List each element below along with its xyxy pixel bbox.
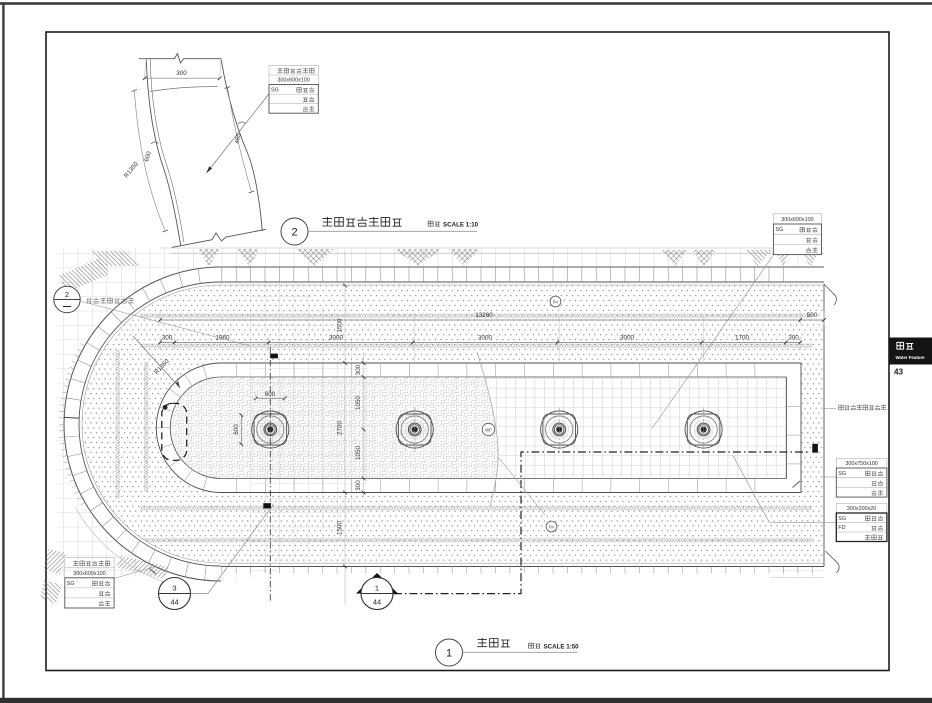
svg-text:13260: 13260	[475, 312, 493, 319]
svg-text:PA: PA	[553, 299, 559, 304]
svg-text:SG: SG	[271, 87, 279, 93]
svg-text:1050: 1050	[355, 396, 362, 411]
svg-text:44: 44	[170, 598, 178, 607]
svg-text:FD: FD	[838, 525, 845, 531]
svg-text:300x750x100: 300x750x100	[845, 461, 877, 467]
svg-text:500: 500	[807, 312, 818, 319]
svg-text:1050: 1050	[355, 446, 362, 461]
svg-text:300: 300	[355, 480, 362, 491]
svg-text:300: 300	[176, 70, 187, 77]
svg-text:300x600x100: 300x600x100	[781, 217, 813, 223]
svg-text:1: 1	[375, 584, 379, 593]
svg-text:300: 300	[355, 364, 362, 375]
svg-text:200x200x20: 200x200x20	[847, 506, 876, 512]
svg-text:1: 1	[446, 648, 452, 660]
svg-text:300: 300	[162, 335, 173, 342]
svg-text:1700: 1700	[735, 335, 750, 342]
svg-text:SG: SG	[775, 227, 783, 233]
svg-text:2: 2	[65, 290, 69, 299]
svg-text:1500: 1500	[337, 521, 344, 536]
svg-text:300x600x100: 300x600x100	[73, 571, 105, 577]
svg-text:SCALE 1:50: SCALE 1:50	[544, 644, 580, 651]
svg-text:3000: 3000	[478, 335, 493, 342]
svg-text:2: 2	[291, 227, 297, 239]
svg-text:300x600x100: 300x600x100	[277, 78, 309, 84]
svg-text:1500: 1500	[337, 318, 344, 333]
svg-text:PA: PA	[549, 524, 555, 529]
svg-text:SG: SG	[838, 471, 846, 477]
svg-text:Water Feature: Water Feature	[896, 355, 926, 360]
svg-text:SG: SG	[67, 581, 75, 587]
svg-text:3000: 3000	[329, 335, 344, 342]
svg-text:WF: WF	[485, 428, 492, 433]
svg-text:2700: 2700	[337, 421, 344, 436]
svg-text:SG: SG	[838, 516, 846, 522]
svg-text:600: 600	[233, 424, 240, 435]
svg-text:SCALE 1:10: SCALE 1:10	[443, 222, 479, 229]
svg-text:44: 44	[373, 598, 381, 607]
svg-text:3: 3	[172, 584, 176, 593]
svg-text:43: 43	[894, 368, 904, 377]
svg-text:1960: 1960	[215, 335, 230, 342]
svg-text:300: 300	[788, 335, 799, 342]
svg-text:600: 600	[265, 391, 276, 398]
svg-text:3000: 3000	[620, 335, 635, 342]
